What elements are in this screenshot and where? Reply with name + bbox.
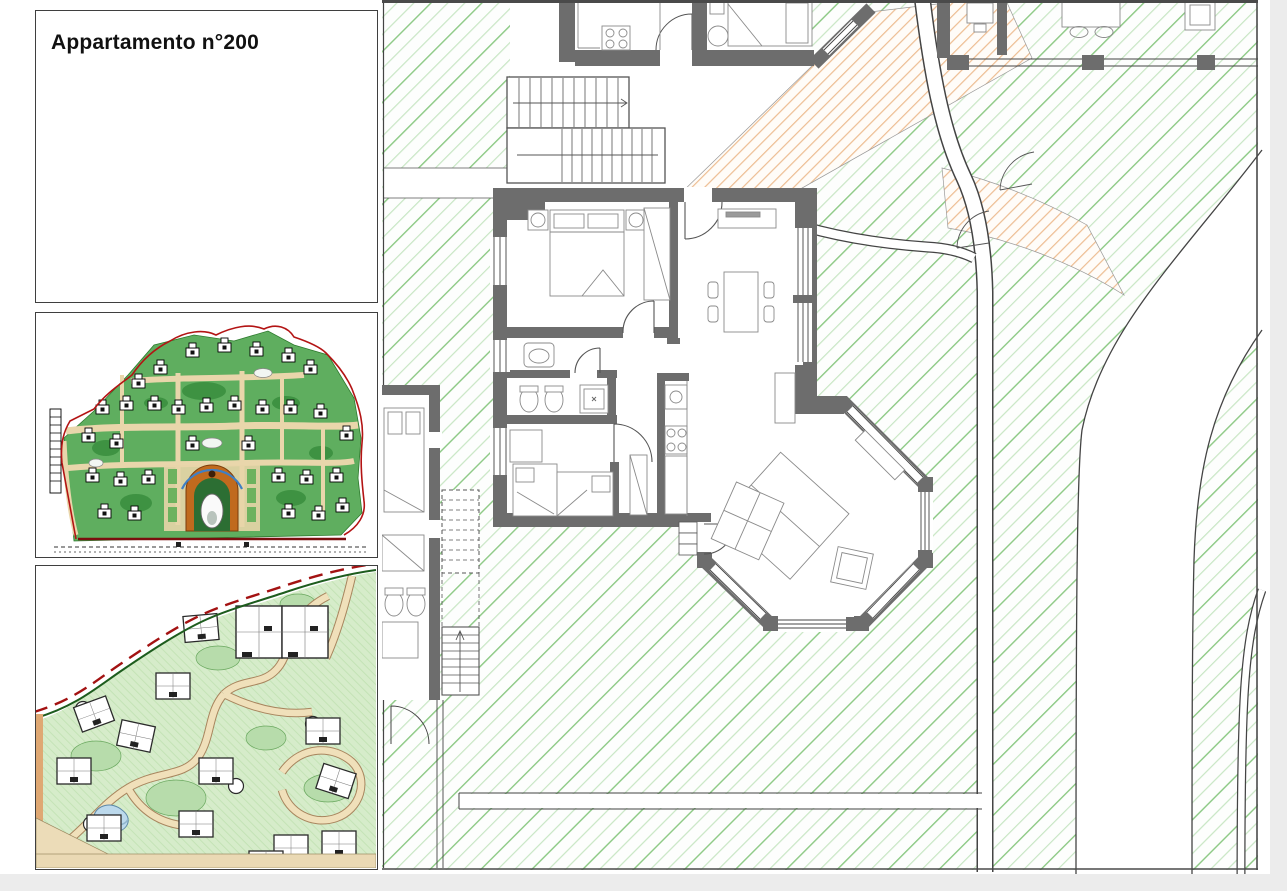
kitchen [665,381,687,516]
apartment-title: Appartamento n°200 [36,11,377,55]
main-floorplan [382,0,1266,874]
masterplan-drawing [36,313,376,556]
masterplan-panel [35,312,378,558]
siteplan-duplex [236,606,328,658]
page-margin-right [1270,0,1287,891]
floor-plan-page: Appartamento n°200 [0,0,1287,891]
title-panel: Appartamento n°200 [35,10,378,303]
masterplan-railway [50,409,61,493]
masterplan-central-feature [164,465,260,531]
page-margin-bottom [0,874,1287,891]
siteplan-drawing [36,566,376,868]
siteplan-panel [35,565,378,870]
floorplan-drawing [382,0,1266,874]
entry-steps [679,522,697,555]
